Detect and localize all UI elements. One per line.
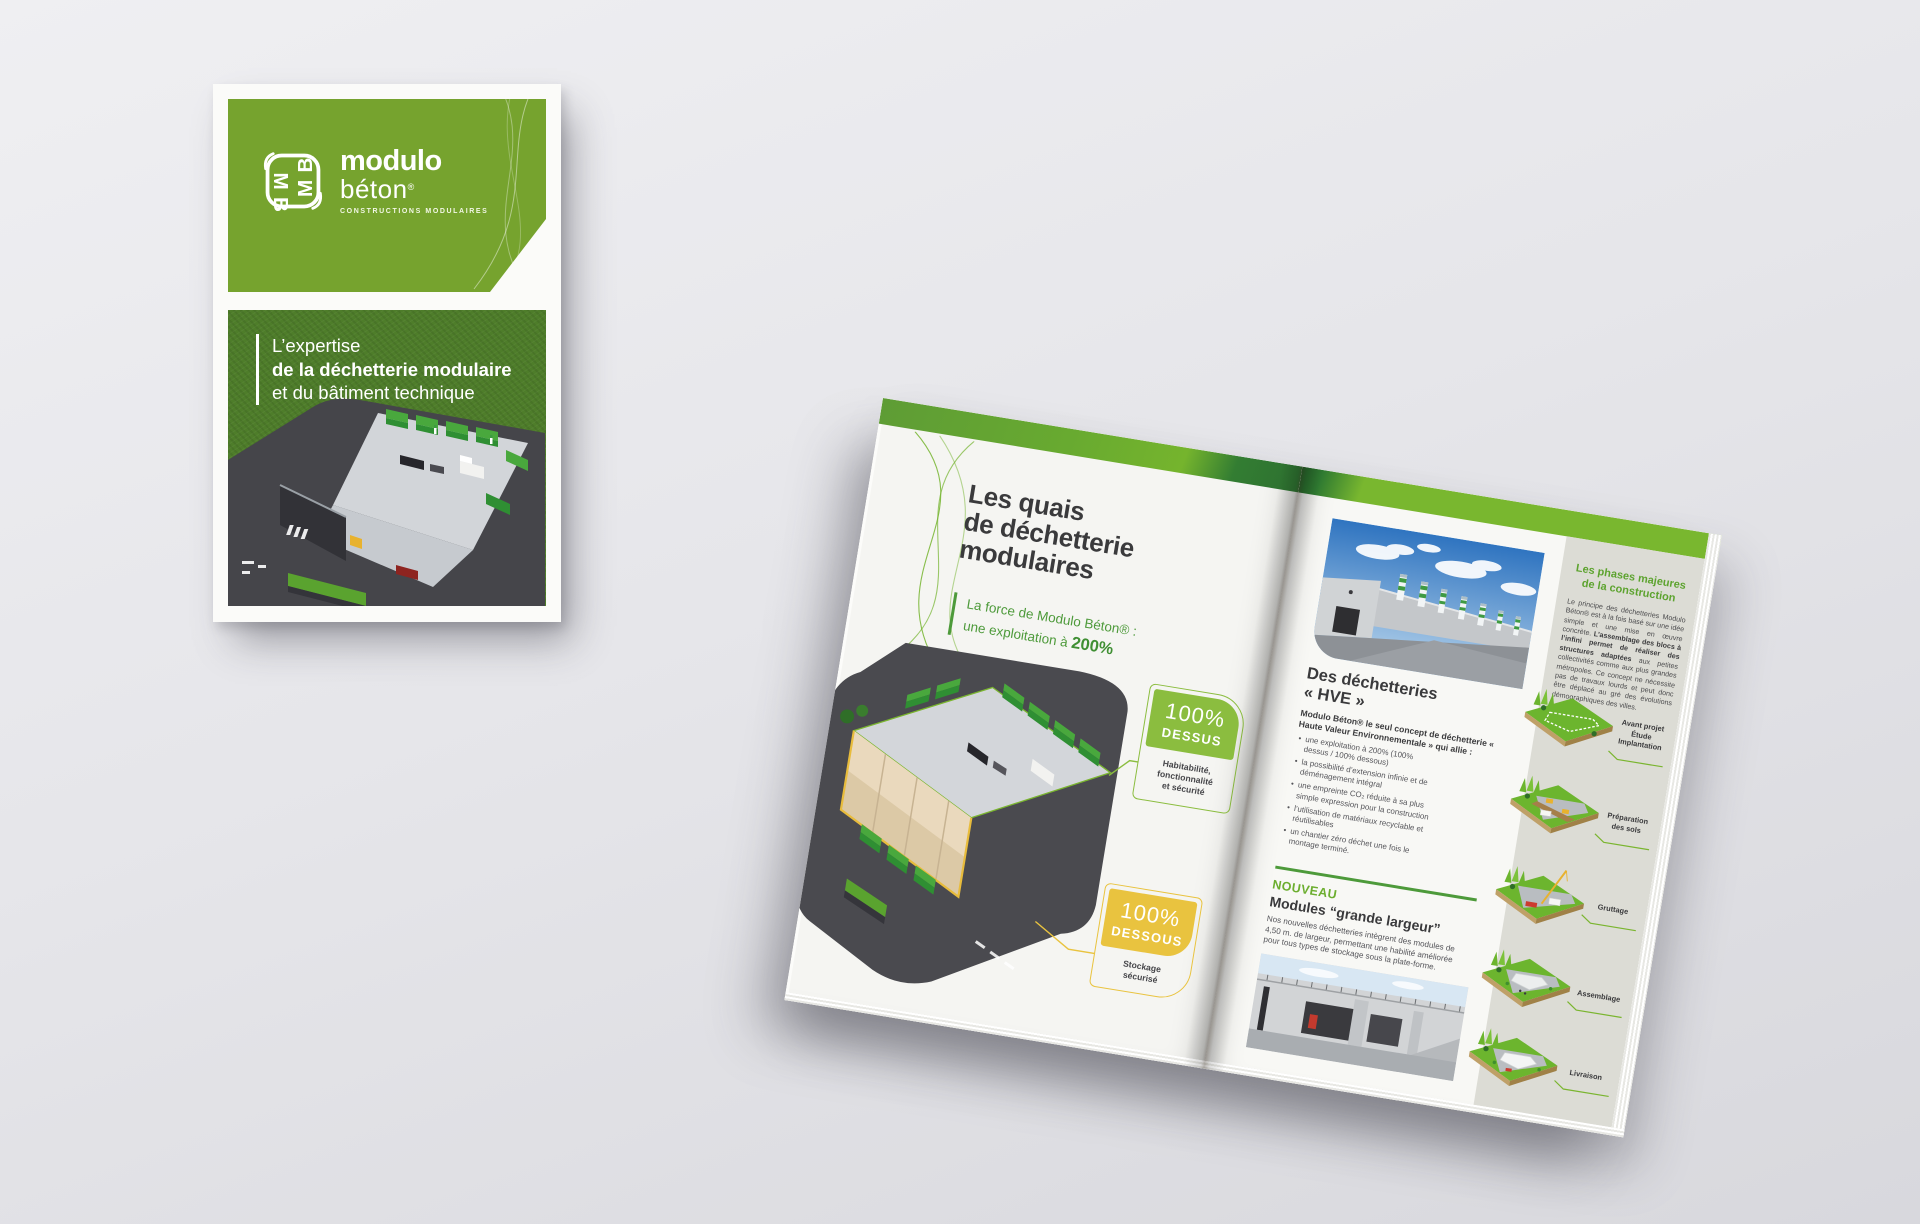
brand-logo: M B B M modulo béton® CONSTRUCTIONS MODU… — [260, 147, 488, 215]
brand-word-beton: béton® — [340, 176, 488, 202]
brochure-open-spread: Les quais de déchetterie modulaires La f… — [784, 398, 1721, 1137]
svg-text:B: B — [294, 158, 317, 173]
dechetterie-photo — [1310, 518, 1544, 689]
modulo-beton-logo-icon: M B B M — [260, 148, 326, 214]
callout-dessous-badge: 100% DESSOUS — [1100, 888, 1197, 960]
brand-tagline: CONSTRUCTIONS MODULAIRES — [340, 208, 488, 215]
phase-tile-delivery-icon — [1460, 1023, 1566, 1106]
cover-white-gap — [228, 292, 546, 310]
callout-dessous: 100% DESSOUS Stockage sécurisé — [1089, 882, 1204, 1002]
phase-label: Avant projet Étude Implantation — [1609, 716, 1673, 754]
subtitle-percent: 200% — [1070, 633, 1115, 658]
callout-dessus: 100% DESSUS Habitabilité, fonctionnalité… — [1132, 683, 1249, 814]
svg-text:M: M — [269, 173, 292, 190]
hve-bullet-list: une exploitation à 200% (100% dessus / 1… — [1280, 734, 1439, 872]
phase-tile-crane-icon — [1486, 857, 1592, 944]
cover-printed-area: M B B M modulo béton® CONSTRUCTIONS MODU… — [228, 99, 546, 607]
registered-mark: ® — [408, 182, 415, 192]
brand-word-modulo: modulo — [340, 147, 488, 176]
cover-title-line2: de la déchetterie modulaire — [272, 358, 512, 382]
brochure-cover: M B B M modulo béton® CONSTRUCTIONS MODU… — [213, 84, 561, 622]
callout-dessus-badge: 100% DESSUS — [1145, 689, 1242, 761]
cover-header-green-block: M B B M modulo béton® CONSTRUCTIONS MODU… — [228, 99, 546, 292]
cover-title: L’expertise de la déchetterie modulaire … — [256, 334, 512, 405]
svg-text:M: M — [294, 180, 317, 197]
phase-tile-assembly-icon — [1473, 944, 1579, 1027]
cover-title-line3: et du bâtiment technique — [272, 381, 512, 405]
cover-title-line1: L’expertise — [272, 334, 512, 358]
cover-photo-area: L’expertise de la déchetterie modulaire … — [228, 310, 546, 606]
svg-text:B: B — [269, 197, 292, 212]
brand-wordmark: modulo béton® CONSTRUCTIONS MODULAIRES — [340, 147, 488, 215]
callout-dessus-caption: Habitabilité, fonctionnalité et sécurité — [1133, 749, 1237, 813]
